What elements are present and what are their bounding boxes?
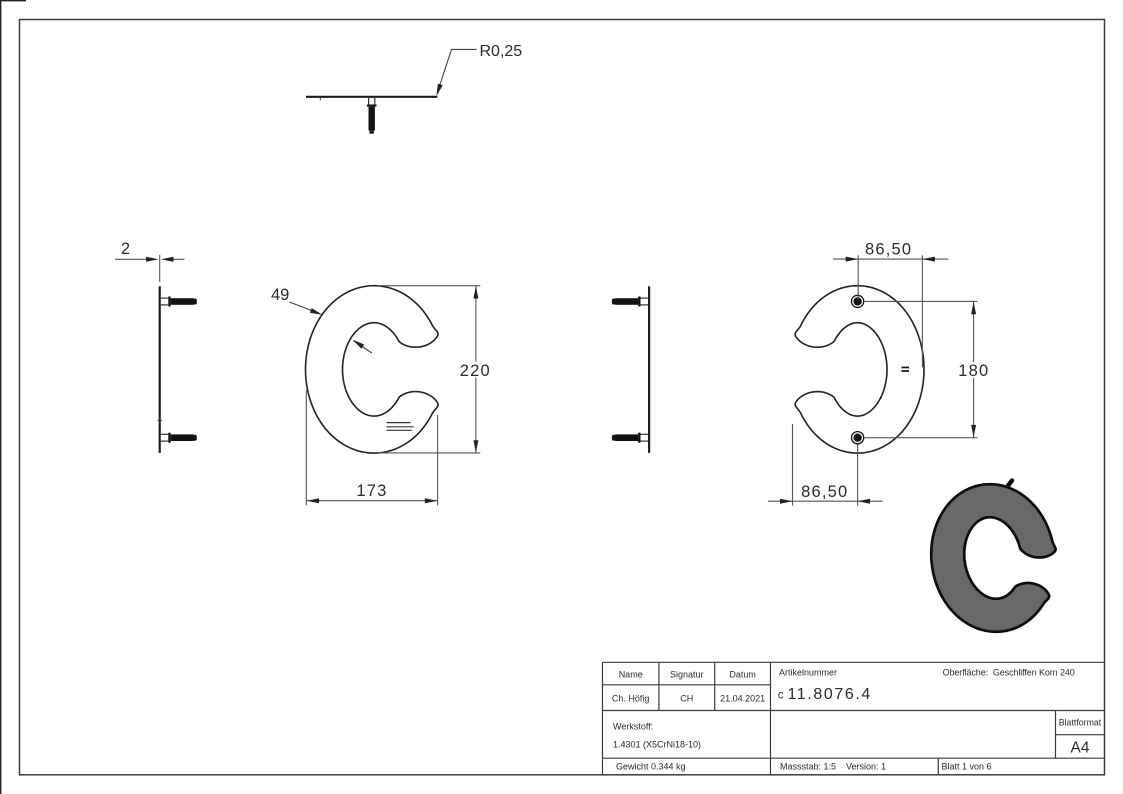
svg-text:173: 173 (356, 482, 387, 500)
svg-text:11.8076.4: 11.8076.4 (788, 686, 872, 703)
svg-text:1.4301 (X5CrNi18-10): 1.4301 (X5CrNi18-10) (613, 740, 701, 750)
svg-text:86,50: 86,50 (801, 483, 848, 501)
svg-text:220: 220 (460, 362, 491, 380)
svg-text:Artikelnummer: Artikelnummer (779, 668, 837, 678)
svg-text:180: 180 (958, 362, 989, 380)
svg-text:Gewicht 0.344 kg: Gewicht 0.344 kg (616, 762, 686, 772)
svg-text:Datum: Datum (729, 670, 756, 680)
svg-text:Signatur: Signatur (670, 670, 704, 680)
svg-text:Version: 1: Version: 1 (846, 762, 886, 772)
svg-text:Massstab: 1:5: Massstab: 1:5 (780, 762, 836, 772)
svg-text:CH: CH (680, 694, 693, 704)
svg-text:49: 49 (271, 286, 289, 304)
svg-text:R0,25: R0,25 (480, 43, 523, 60)
svg-text:Blattformat: Blattformat (1059, 718, 1102, 728)
svg-text:21.04.2021: 21.04.2021 (720, 694, 765, 704)
svg-text:86,50: 86,50 (865, 241, 912, 259)
svg-text:A4: A4 (1071, 740, 1090, 757)
svg-text:Oberfläche: Geschliffen Korn: Oberfläche: Geschliffen Korn 240 (943, 668, 1075, 678)
svg-text:c: c (778, 690, 784, 702)
svg-text:Werkstoff:: Werkstoff: (613, 722, 653, 732)
svg-text:2: 2 (121, 240, 130, 258)
svg-text:Blatt 1 von 6: Blatt 1 von 6 (942, 762, 992, 772)
svg-text:Ch. Höfig: Ch. Höfig (612, 694, 650, 704)
svg-text:Name: Name (619, 670, 643, 680)
